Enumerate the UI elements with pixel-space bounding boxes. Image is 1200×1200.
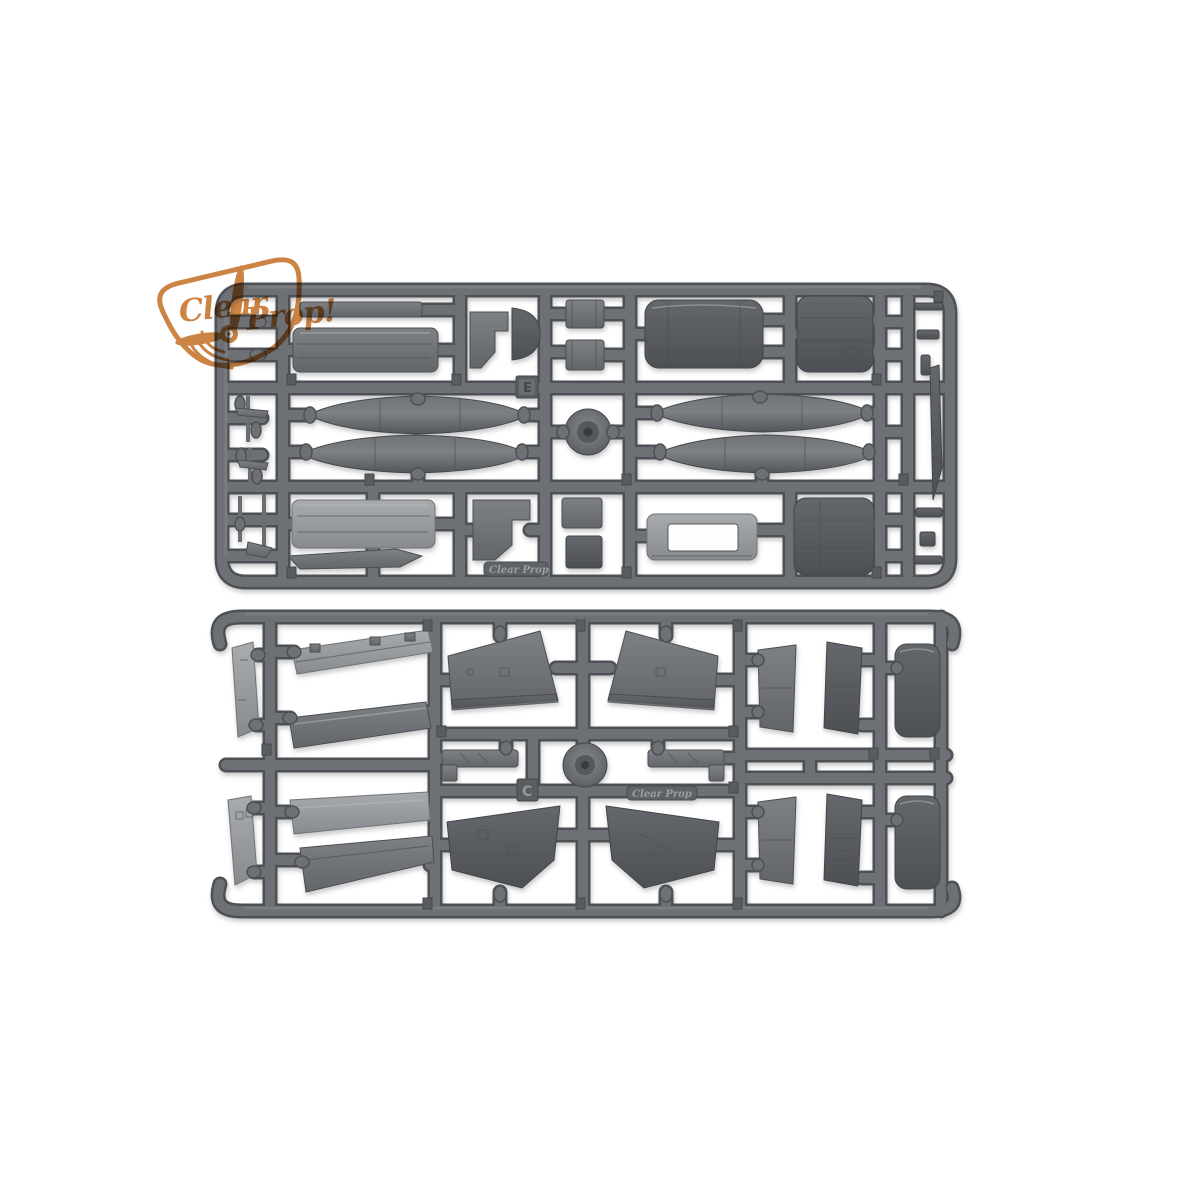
drop-tank-part-2 <box>301 435 527 473</box>
small-block-parts-2 <box>562 498 602 568</box>
wheel-hub-part <box>565 409 611 455</box>
wing-upper-half-left <box>448 631 558 710</box>
right-column-small-parts <box>914 303 943 564</box>
sprue-bottom: C Clear Prop <box>218 614 954 911</box>
stabilizer-part-4 <box>895 796 940 889</box>
stabilizer-part-2 <box>895 644 940 737</box>
canopy-part <box>512 308 540 360</box>
open-frame-part <box>647 514 757 560</box>
fuselage-half-part-1 <box>645 300 763 368</box>
flap-part-2 <box>289 702 431 748</box>
sprue-letter-tag-e: E <box>516 376 538 398</box>
cowl-part-lower <box>292 500 435 548</box>
stabilizer-part-1 <box>824 642 862 734</box>
flap-part-3 <box>290 792 430 834</box>
sprue-product-photo: E Clear Prop <box>0 0 1200 1200</box>
nameplate-text-bottom: Clear Prop <box>632 789 692 800</box>
wing-upper-half-right <box>608 631 718 710</box>
fuselage-half-part-2 <box>797 296 873 372</box>
stepped-bracket-part <box>470 312 508 368</box>
sprue-top: E Clear Prop <box>222 287 950 582</box>
stepped-bracket-part-2 <box>473 500 530 560</box>
sprue-letter-c: C <box>522 784 532 800</box>
flap-part-1 <box>292 630 433 674</box>
spinner-part <box>563 743 607 787</box>
brand-nameplate-bottom: Clear Prop <box>627 786 697 800</box>
small-block-parts <box>566 300 604 370</box>
brand-nameplate-top: Clear Prop <box>484 562 549 576</box>
wing-lower-half-right <box>606 806 719 888</box>
wing-lower-half-left <box>447 806 560 888</box>
fuselage-half-part-3 <box>794 498 874 575</box>
nameplate-text-top: Clear Prop <box>489 565 549 576</box>
photo-canvas: E Clear Prop <box>0 0 1200 1200</box>
sprue-letter-tag-c: C <box>517 779 538 801</box>
sprue-letter-e: E <box>523 381 532 396</box>
drop-tank-part-4 <box>656 435 875 473</box>
flap-part-4 <box>300 836 434 892</box>
fairing-strip-part <box>288 549 422 569</box>
engine-cowl-part <box>293 328 438 372</box>
